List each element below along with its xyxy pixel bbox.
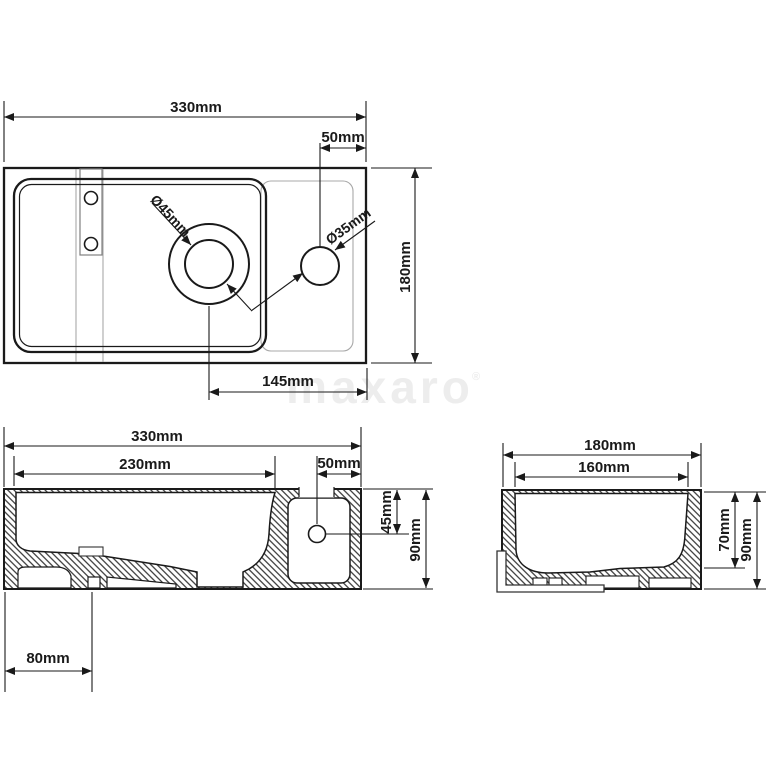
side-view: 180mm 160mm 70mm 90mm [497, 437, 766, 592]
front-view-drain-offset-label: 80mm [26, 650, 69, 667]
side-view-basin-cavity [515, 494, 688, 574]
side-view-inner-width-dimension: 160mm [515, 459, 688, 487]
front-view-width-dimension: 330mm [4, 427, 361, 487]
front-view-tap-offset-label: 50mm [317, 455, 360, 472]
top-view-width-dimension: 330mm [4, 99, 366, 162]
front-view-inner-width-label: 230mm [119, 456, 171, 473]
drain-diameter-label: Ø45mm [147, 191, 194, 239]
top-view-depth-label: 180mm [397, 241, 414, 293]
front-view-width-label: 330mm [131, 428, 183, 445]
top-view-width-label: 330mm [170, 99, 222, 116]
top-view-drain-offset-label: 145mm [262, 373, 314, 390]
front-view-pocket-left [18, 567, 71, 588]
watermark-registered-mark: ® [472, 371, 480, 383]
drain-hole-circle [185, 240, 233, 288]
top-view: 330mm 50mm 180mm Ø45mm Ø35mm [4, 99, 432, 400]
top-view-depth-dimension: 180mm [371, 168, 432, 363]
front-view-drain-outlet-notch [88, 577, 100, 588]
front-view-drain-boss [79, 547, 103, 556]
bracket-screw-hole-top [85, 192, 98, 205]
top-view-tap-offset-label: 50mm [321, 129, 364, 146]
front-view: 330mm 230mm 50mm 45mm 90mm [4, 427, 433, 692]
side-view-width-label: 180mm [584, 437, 636, 454]
tap-hole-circle [301, 247, 339, 285]
sink-dimension-drawing: maxaro ® 330mm 50mm [0, 0, 774, 774]
front-view-inner-width-dimension: 230mm [14, 456, 275, 488]
watermark-text: maxaro [286, 361, 474, 413]
side-view-height-label: 90mm [738, 518, 755, 561]
front-view-height-label: 90mm [407, 518, 424, 561]
side-view-inner-width-label: 160mm [578, 459, 630, 476]
bracket-screw-hole-bottom [85, 238, 98, 251]
front-view-height-dimension: 90mm [363, 490, 433, 589]
side-view-pocket-4 [649, 578, 691, 588]
technical-drawing-page: maxaro ® 330mm 50mm [0, 0, 774, 774]
side-view-basin-depth-label: 70mm [716, 508, 733, 551]
front-view-tap-depth-label: 45mm [378, 490, 395, 533]
watermark: maxaro ® [286, 361, 480, 413]
front-view-tap-hole [309, 526, 326, 543]
front-view-drain-offset-dimension: 80mm [5, 592, 92, 692]
